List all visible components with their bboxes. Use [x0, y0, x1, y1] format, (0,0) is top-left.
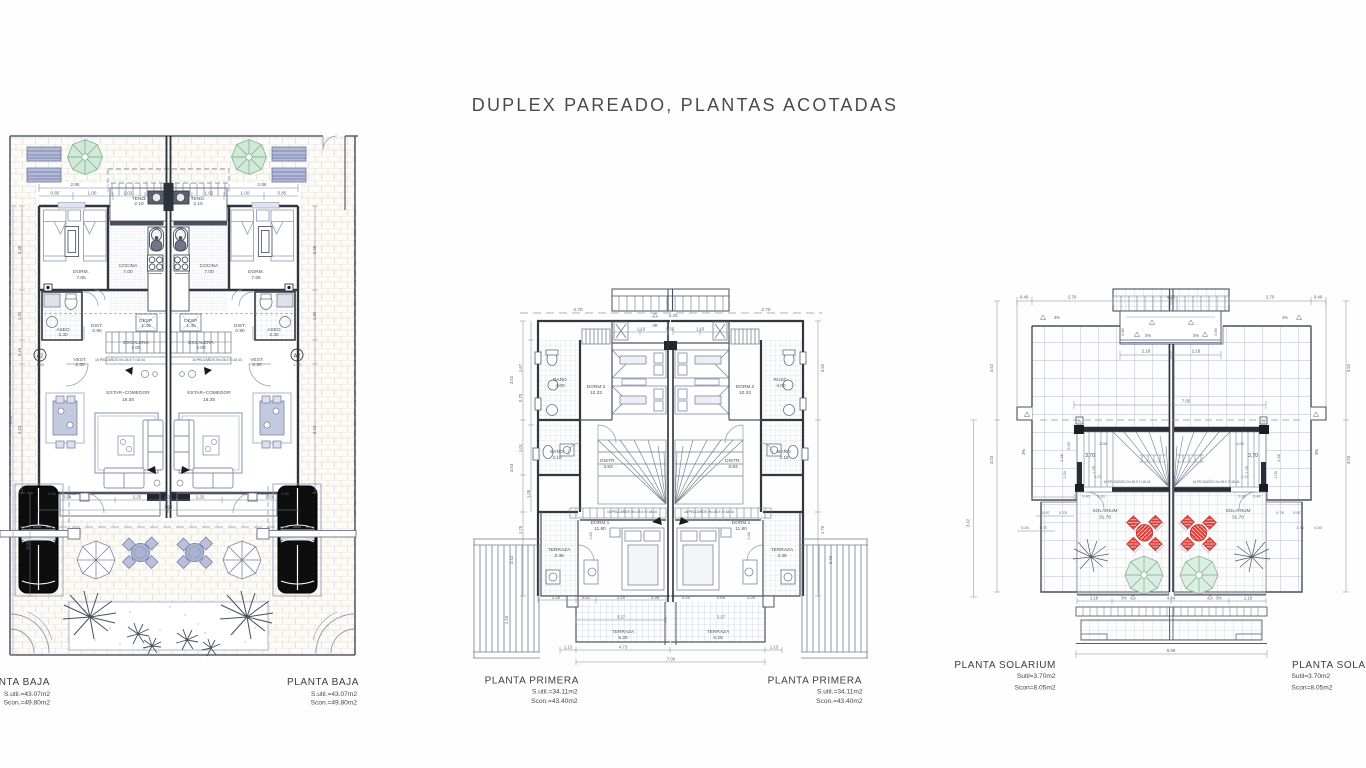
- svg-text:3.27: 3.27: [717, 615, 726, 620]
- svg-text:16 PELDAÑOS 0h=26.5 T=18.44: 16 PELDAÑOS 0h=26.5 T=18.44: [95, 357, 145, 362]
- svg-text:0.93: 0.93: [1097, 495, 1104, 499]
- svg-text:0.87: 0.87: [1293, 511, 1300, 515]
- svg-text:2.88: 2.88: [258, 182, 267, 187]
- svg-text:2.30: 2.30: [269, 332, 279, 338]
- svg-text:2.28: 2.28: [1277, 454, 1281, 461]
- svg-text:2.18: 2.18: [1192, 349, 1201, 354]
- svg-text:3.52: 3.52: [989, 363, 994, 372]
- svg-text:1.02: 1.02: [124, 191, 133, 196]
- svg-text:5.25: 5.25: [618, 635, 628, 641]
- svg-text:0.96: 0.96: [68, 492, 75, 496]
- svg-text:1.27: 1.27: [1241, 475, 1248, 479]
- svg-text:Sutil=3.70m2: Sutil=3.70m2: [1017, 673, 1056, 680]
- svg-text:1.13: 1.13: [564, 645, 573, 650]
- svg-text:2.28: 2.28: [1060, 454, 1064, 461]
- svg-text:1.78: 1.78: [1245, 466, 1249, 473]
- svg-text:S.util.=34.11m2: S.util.=34.11m2: [817, 689, 863, 696]
- svg-text:5.38: 5.38: [312, 245, 317, 254]
- svg-text:DORM.: DORM.: [73, 269, 89, 275]
- svg-text:2.20: 2.20: [682, 595, 691, 600]
- svg-text:11.80: 11.80: [735, 526, 747, 532]
- svg-text:1.03: 1.03: [1063, 471, 1067, 478]
- svg-text:31.70: 31.70: [1099, 515, 1111, 521]
- svg-text:DORM.: DORM.: [248, 269, 264, 275]
- svg-text:1.78: 1.78: [1092, 466, 1096, 473]
- svg-text:COCINA: COCINA: [119, 263, 138, 269]
- svg-text:1.30: 1.30: [312, 311, 317, 320]
- svg-text:1.30: 1.30: [17, 311, 22, 320]
- svg-text:1.27: 1.27: [1094, 475, 1101, 479]
- svg-text:A2: A2: [294, 354, 301, 360]
- svg-text:BAÑO: BAÑO: [777, 448, 791, 455]
- svg-text:0.45: 0.45: [17, 347, 22, 356]
- svg-text:1.18: 1.18: [1244, 596, 1253, 601]
- svg-text:16 PELDAÑOS 0h=26.5 T=18.44: 16 PELDAÑOS 0h=26.5 T=18.44: [684, 509, 734, 514]
- svg-text:Sutil=3.70m2: Sutil=3.70m2: [1292, 673, 1331, 680]
- svg-text:PLANTA SOLARIUM: PLANTA SOLARIUM: [954, 660, 1056, 671]
- svg-text:Scon=8.05m2: Scon=8.05m2: [1292, 685, 1333, 692]
- svg-text:1.67: 1.67: [518, 363, 523, 372]
- svg-text:0.54: 0.54: [241, 492, 248, 496]
- svg-text:0.85: 0.85: [51, 191, 60, 196]
- svg-text:3.43: 3.43: [509, 555, 514, 564]
- svg-text:3.63: 3.63: [509, 463, 514, 472]
- svg-text:11.80: 11.80: [594, 526, 606, 532]
- svg-text:A: A: [1078, 419, 1081, 424]
- svg-text:3.42: 3.42: [828, 555, 833, 564]
- svg-text:1.10: 1.10: [696, 327, 705, 332]
- svg-text:DORM.1: DORM.1: [732, 520, 751, 526]
- svg-text:2.00: 2.00: [131, 345, 141, 351]
- svg-text:0.98: 0.98: [651, 595, 660, 600]
- svg-text:5.38: 5.38: [17, 245, 22, 254]
- svg-text:3R: 3R: [652, 323, 658, 328]
- svg-text:PLANTA SOLARIUM: PLANTA SOLARIUM: [1292, 660, 1366, 671]
- svg-text:0.66: 0.66: [717, 595, 726, 600]
- svg-text:3%: 3%: [1145, 333, 1151, 338]
- svg-text:1.03: 1.03: [1274, 471, 1278, 478]
- svg-text:2.70: 2.70: [1266, 295, 1275, 300]
- svg-text:0.94: 0.94: [48, 492, 55, 496]
- svg-text:1.50: 1.50: [36, 362, 45, 367]
- svg-text:Scon=8.05m2: Scon=8.05m2: [1015, 685, 1056, 692]
- svg-text:2.18: 2.18: [1142, 349, 1151, 354]
- svg-text:0.40: 0.40: [1253, 495, 1260, 499]
- svg-text:3.42: 3.42: [966, 518, 971, 527]
- svg-text:7.65: 7.65: [76, 275, 86, 281]
- svg-text:Scon.=49.80m2: Scon.=49.80m2: [311, 700, 358, 707]
- svg-text:2.25: 2.25: [196, 495, 205, 500]
- svg-text:7.00: 7.00: [667, 657, 676, 662]
- svg-text:3.83: 3.83: [728, 464, 738, 470]
- svg-text:1.10: 1.10: [637, 327, 646, 332]
- svg-text:16 PELDAÑOS 0h=26.5 T=18.44: 16 PELDAÑOS 0h=26.5 T=18.44: [192, 357, 242, 362]
- svg-text:2.30: 2.30: [252, 362, 262, 368]
- svg-text:1.63: 1.63: [747, 532, 751, 539]
- svg-text:TERRAZA: TERRAZA: [771, 547, 794, 553]
- svg-text:0.87: 0.87: [1042, 511, 1049, 515]
- svg-text:DORM.2: DORM.2: [587, 384, 606, 390]
- svg-text:3.52: 3.52: [509, 375, 514, 384]
- svg-text:3.03: 3.03: [989, 455, 994, 464]
- svg-text:3.52: 3.52: [1346, 363, 1351, 372]
- svg-text:SOLARIUM: SOLARIUM: [1225, 508, 1250, 514]
- svg-text:ESTAR–COMEDOR: ESTAR–COMEDOR: [187, 390, 231, 396]
- svg-text:1.02: 1.02: [205, 191, 214, 196]
- svg-text:2.30: 2.30: [75, 362, 85, 368]
- svg-text:2.10: 2.10: [193, 201, 203, 207]
- svg-text:1.00: 1.00: [1236, 441, 1245, 446]
- svg-text:1.75: 1.75: [1296, 526, 1303, 530]
- svg-text:1.13: 1.13: [770, 645, 779, 650]
- svg-text:TERRAZA: TERRAZA: [548, 547, 571, 553]
- svg-text:1.63: 1.63: [589, 532, 593, 539]
- svg-text:Scon.=43.40m2: Scon.=43.40m2: [816, 698, 863, 705]
- svg-text:16 PELDAÑOS 0h=26.5 T=18.44: 16 PELDAÑOS 0h=26.5 T=18.44: [1104, 479, 1151, 484]
- svg-text:6.99: 6.99: [1167, 648, 1176, 653]
- svg-text:RUSC.: RUSC.: [774, 377, 789, 383]
- svg-text:S.util.=43.07m2: S.util.=43.07m2: [311, 691, 357, 698]
- svg-text:3%: 3%: [1282, 315, 1288, 320]
- svg-text:3,70: 3,70: [1085, 453, 1095, 459]
- svg-text:0.85: 0.85: [1214, 328, 1218, 335]
- svg-text:1.01: 1.01: [518, 443, 523, 452]
- svg-text:2.25: 2.25: [133, 495, 142, 500]
- svg-text:7.00: 7.00: [204, 269, 214, 275]
- svg-text:0.70: 0.70: [518, 393, 523, 402]
- svg-text:4.20: 4.20: [1167, 295, 1176, 300]
- svg-text:3%: 3%: [1121, 596, 1127, 601]
- svg-text:TERRAZA: TERRAZA: [612, 629, 635, 635]
- svg-text:0.90: 0.90: [92, 328, 102, 334]
- svg-text:0.96: 0.96: [261, 492, 268, 496]
- svg-text:3%: 3%: [1054, 315, 1060, 320]
- svg-text:1.00: 1.00: [1099, 441, 1108, 446]
- svg-text:7.05: 7.05: [1182, 399, 1191, 404]
- svg-text:0.78: 0.78: [1059, 511, 1066, 515]
- svg-text:3%: 3%: [1314, 449, 1319, 455]
- svg-text:10.32: 10.32: [590, 390, 602, 396]
- svg-text:0.40: 0.40: [1314, 295, 1323, 300]
- svg-text:0.85: 0.85: [1121, 328, 1125, 335]
- svg-text:1.00: 1.00: [241, 191, 250, 196]
- svg-text:2.70: 2.70: [1068, 295, 1077, 300]
- svg-text:7.00: 7.00: [123, 269, 133, 275]
- svg-text:DORM.2: DORM.2: [736, 384, 755, 390]
- svg-text:3%: 3%: [1021, 449, 1026, 455]
- svg-text:5.25: 5.25: [713, 635, 723, 641]
- svg-text:2.00: 2.00: [196, 345, 206, 351]
- svg-text:S.util.=34.11m2: S.util.=34.11m2: [532, 689, 578, 696]
- svg-text:0.40: 0.40: [1020, 295, 1029, 300]
- svg-text:4.00: 4.00: [555, 383, 565, 389]
- svg-text:4.18: 4.18: [552, 455, 562, 461]
- svg-text:0.90: 0.90: [235, 328, 245, 334]
- svg-text:0.85: 0.85: [278, 191, 287, 196]
- svg-text:1.75: 1.75: [820, 525, 825, 534]
- svg-text:3.83: 3.83: [603, 464, 613, 470]
- svg-text:0.40: 0.40: [1082, 495, 1089, 499]
- svg-text:0.93: 0.93: [1067, 442, 1071, 449]
- svg-text:4.18: 4.18: [779, 455, 789, 461]
- svg-text:2.30: 2.30: [58, 332, 68, 338]
- svg-text:A2: A2: [37, 354, 44, 360]
- svg-text:PLANTA BAJA: PLANTA BAJA: [0, 677, 50, 688]
- svg-text:4.73: 4.73: [619, 645, 628, 650]
- svg-text:16 PELDAÑOS 0h=26.5 T=18.44: 16 PELDAÑOS 0h=26.5 T=18.44: [1193, 479, 1240, 484]
- svg-text:1.75: 1.75: [1039, 526, 1046, 530]
- svg-text:2.20: 2.20: [617, 595, 626, 600]
- svg-text:0.40: 0.40: [1021, 526, 1028, 530]
- svg-text:DISTR.: DISTR.: [600, 458, 616, 464]
- svg-text:1.50: 1.50: [293, 362, 302, 367]
- svg-text:4.00: 4.00: [776, 383, 786, 389]
- svg-text:0.93: 0.93: [1238, 495, 1245, 499]
- svg-text:3.03: 3.03: [1346, 455, 1351, 464]
- svg-text:ESTAR–COMEDOR: ESTAR–COMEDOR: [106, 390, 150, 396]
- svg-text:7.60: 7.60: [164, 505, 173, 510]
- svg-text:3.43: 3.43: [312, 425, 317, 434]
- svg-text:9.63: 9.63: [8, 415, 13, 424]
- svg-text:1.30: 1.30: [747, 595, 756, 600]
- svg-text:7.65: 7.65: [251, 275, 261, 281]
- svg-text:COCINA: COCINA: [200, 263, 219, 269]
- svg-text:0.94: 0.94: [281, 492, 288, 496]
- svg-text:18.35: 18.35: [122, 397, 134, 403]
- svg-text:1.30: 1.30: [552, 595, 561, 600]
- svg-text:31.70: 31.70: [1232, 515, 1244, 521]
- svg-text:PLANTA PRIMERA: PLANTA PRIMERA: [768, 676, 862, 687]
- svg-text:16 PELDAÑOS 0h=26.5 T=18.44: 16 PELDAÑOS 0h=26.5 T=18.44: [607, 509, 657, 514]
- svg-text:SOLARIUM: SOLARIUM: [1092, 508, 1117, 514]
- svg-text:1.45: 1.45: [141, 323, 151, 329]
- svg-text:3.36: 3.36: [554, 553, 564, 559]
- svg-text:DISTR.: DISTR.: [725, 458, 741, 464]
- svg-text:2.88: 2.88: [71, 182, 80, 187]
- svg-text:3.27: 3.27: [617, 615, 626, 620]
- svg-text:0.35: 0.35: [666, 327, 675, 332]
- svg-text:2.70: 2.70: [762, 307, 771, 312]
- svg-text:1.18: 1.18: [1090, 596, 1099, 601]
- svg-text:3%: 3%: [1193, 333, 1199, 338]
- svg-text:1.75: 1.75: [518, 525, 523, 534]
- svg-text:BAÑO: BAÑO: [550, 448, 564, 455]
- svg-text:5.00: 5.00: [25, 540, 30, 549]
- svg-text:0.54: 0.54: [88, 492, 95, 496]
- svg-text:1.05: 1.05: [526, 489, 531, 498]
- svg-text:Scon.=43.40m2: Scon.=43.40m2: [531, 698, 578, 705]
- svg-text:2.70: 2.70: [574, 307, 583, 312]
- svg-text:TERRAZA: TERRAZA: [707, 629, 730, 635]
- svg-text:2.10: 2.10: [134, 201, 144, 207]
- svg-text:1.35: 1.35: [164, 495, 173, 500]
- svg-text:3.52: 3.52: [820, 363, 825, 372]
- svg-text:BAÑO: BAÑO: [553, 376, 567, 383]
- svg-text:3%: 3%: [1216, 596, 1222, 601]
- svg-text:0.78: 0.78: [1276, 511, 1283, 515]
- svg-text:1.00: 1.00: [88, 191, 97, 196]
- svg-text:0.61: 0.61: [582, 595, 591, 600]
- svg-text:4.64: 4.64: [1167, 596, 1176, 601]
- svg-text:S.util.=43.07m2: S.util.=43.07m2: [4, 691, 50, 698]
- svg-text:3.43: 3.43: [17, 425, 22, 434]
- svg-text:Scon.=49.80m2: Scon.=49.80m2: [4, 700, 51, 707]
- svg-text:1.15: 1.15: [504, 615, 509, 624]
- svg-text:18.35: 18.35: [203, 397, 215, 403]
- svg-text:1.45: 1.45: [186, 323, 196, 329]
- svg-text:0.40: 0.40: [1314, 526, 1321, 530]
- svg-text:3.36: 3.36: [777, 553, 787, 559]
- svg-text:3,70: 3,70: [1248, 453, 1258, 459]
- svg-text:10.32: 10.32: [739, 390, 751, 396]
- svg-text:PLANTA PRIMERA: PLANTA PRIMERA: [485, 676, 579, 687]
- svg-text:DORM.1: DORM.1: [591, 520, 610, 526]
- svg-text:PLANTA BAJA: PLANTA BAJA: [287, 677, 359, 688]
- svg-text:4.20: 4.20: [669, 313, 678, 318]
- svg-text:DUPLEX PAREADO, PLANTAS ACOTAD: DUPLEX PAREADO, PLANTAS ACOTADAS: [472, 95, 899, 115]
